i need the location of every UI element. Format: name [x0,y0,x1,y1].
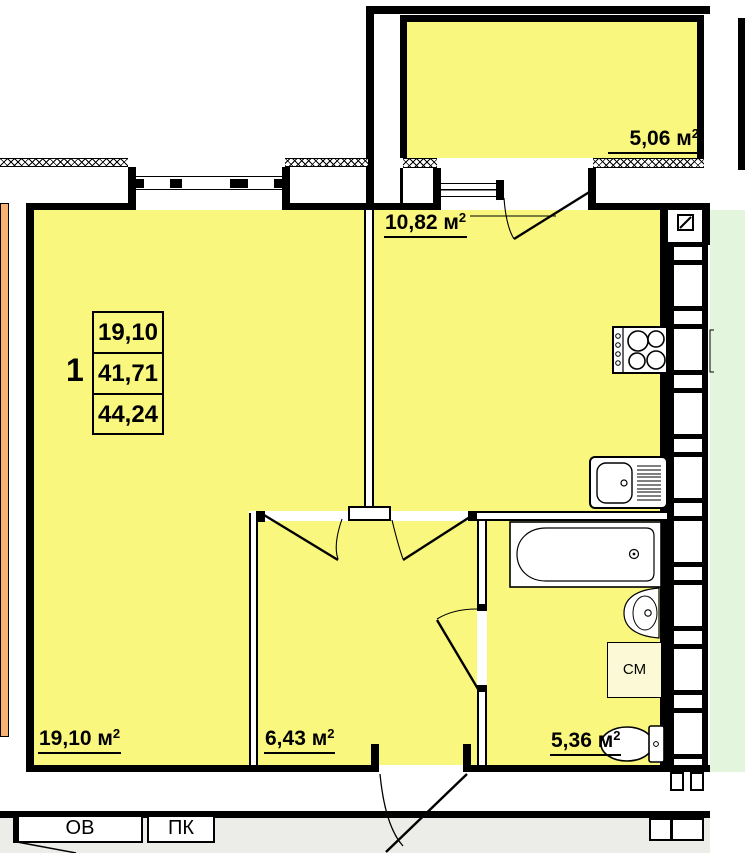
adjacent-balcony-wall [738,18,745,170]
balcony-window-edge [400,168,403,210]
living-wall-top-right [282,203,368,210]
hallway-area-label: 6,43 м2 [264,727,335,754]
window-mullion [230,179,248,188]
vent-symbol [677,214,694,231]
kitchen-wall-top-right [588,203,710,210]
total-area-value: 44,24 [94,395,162,434]
washing-machine: СМ [607,642,662,698]
unit-number: 1 [66,352,84,389]
window-mullion [170,179,182,188]
outer-wall-top [366,6,710,14]
partition-hall-bathroom-lower [477,692,487,765]
bottom-wall-right [463,765,710,772]
corridor-niche [649,818,704,841]
door-jamb [468,511,477,521]
outer-wall-corner [366,6,374,203]
vent-column-foot [690,772,704,791]
vent-shaft-blocks [674,247,702,765]
partition-living-hallway [249,513,258,765]
vent-column-foot [670,772,684,791]
window-kitchen [441,183,496,197]
partition-kitchen-bathroom [477,511,667,521]
niche-divider [670,820,673,839]
kitchen-area-label: 10,82 м2 [384,211,467,238]
living-wall-left [26,203,34,772]
partition-end-post [348,506,391,521]
window-living-room [136,176,282,190]
balcony-wall-left [400,15,407,158]
insulation-hatch-mid [285,158,368,167]
living-wall-top-left [26,203,136,210]
bath-door-jamb [477,604,487,611]
unit-number-text: 1 [66,352,84,388]
left-neighbor-wall-strip [0,203,9,737]
balcony-wall-top [400,15,704,22]
balcony-area-label: 5,06 м2 [608,127,700,154]
partition-living-kitchen [364,210,374,506]
bathroom-area-label: 5,36 м2 [550,729,621,756]
bottom-wall-left [26,765,379,772]
unit-info-box: 19,10 41,71 44,24 [92,311,164,435]
pk-label: ПК [168,817,194,839]
living-area-value: 19,10 [94,313,162,354]
entrance-jamb-left [371,744,379,772]
balcony-window-jamb-right [496,180,504,200]
ov-label: ОВ [66,817,95,839]
living-area-label: 19,10 м2 [38,727,121,754]
ov-box: ОВ [17,815,143,843]
insulation-hatch-balcony-left [403,158,437,168]
vent-area-wall-right [702,203,710,245]
area-no-balcony-value: 41,71 [94,354,162,395]
insulation-hatch-balcony-right [593,158,704,168]
window-mullion [136,179,144,188]
bath-door-jamb [477,685,487,692]
window-mullion [274,179,282,188]
washing-machine-label: СМ [623,661,646,678]
kitchen-wall-top-left [366,203,441,210]
right-neighbor-area [710,210,745,772]
room-kitchen [374,210,660,511]
partition-hall-bathroom-upper [477,521,487,604]
pk-box: ПК [147,815,215,843]
vent-shaft-column [668,242,708,770]
insulation-hatch-left [0,158,128,167]
entrance-jamb-right [463,744,471,772]
floor-plan: ОВ ПК СМ [0,0,745,853]
balcony-window-jamb-left [433,168,441,210]
